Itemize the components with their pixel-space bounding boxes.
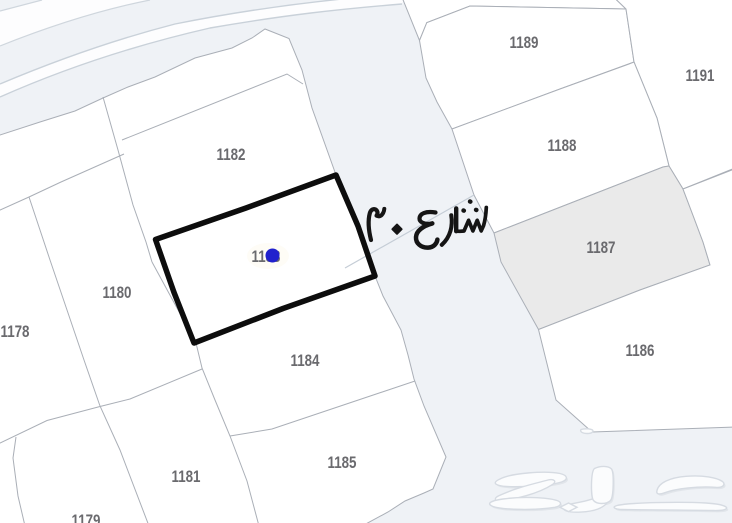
svg-text:1180: 1180 — [103, 283, 132, 302]
svg-text:1191: 1191 — [686, 66, 715, 85]
svg-text:1181: 1181 — [172, 467, 201, 486]
svg-text:1184: 1184 — [291, 351, 320, 370]
svg-text:1186: 1186 — [626, 341, 655, 360]
svg-text:1178: 1178 — [1, 322, 30, 341]
svg-text:1187: 1187 — [587, 238, 616, 257]
svg-text:1182: 1182 — [217, 145, 246, 164]
svg-text:1189: 1189 — [510, 33, 539, 52]
svg-text:1185: 1185 — [328, 453, 357, 472]
svg-text:1179: 1179 — [72, 511, 101, 523]
svg-text:1188: 1188 — [548, 136, 577, 155]
